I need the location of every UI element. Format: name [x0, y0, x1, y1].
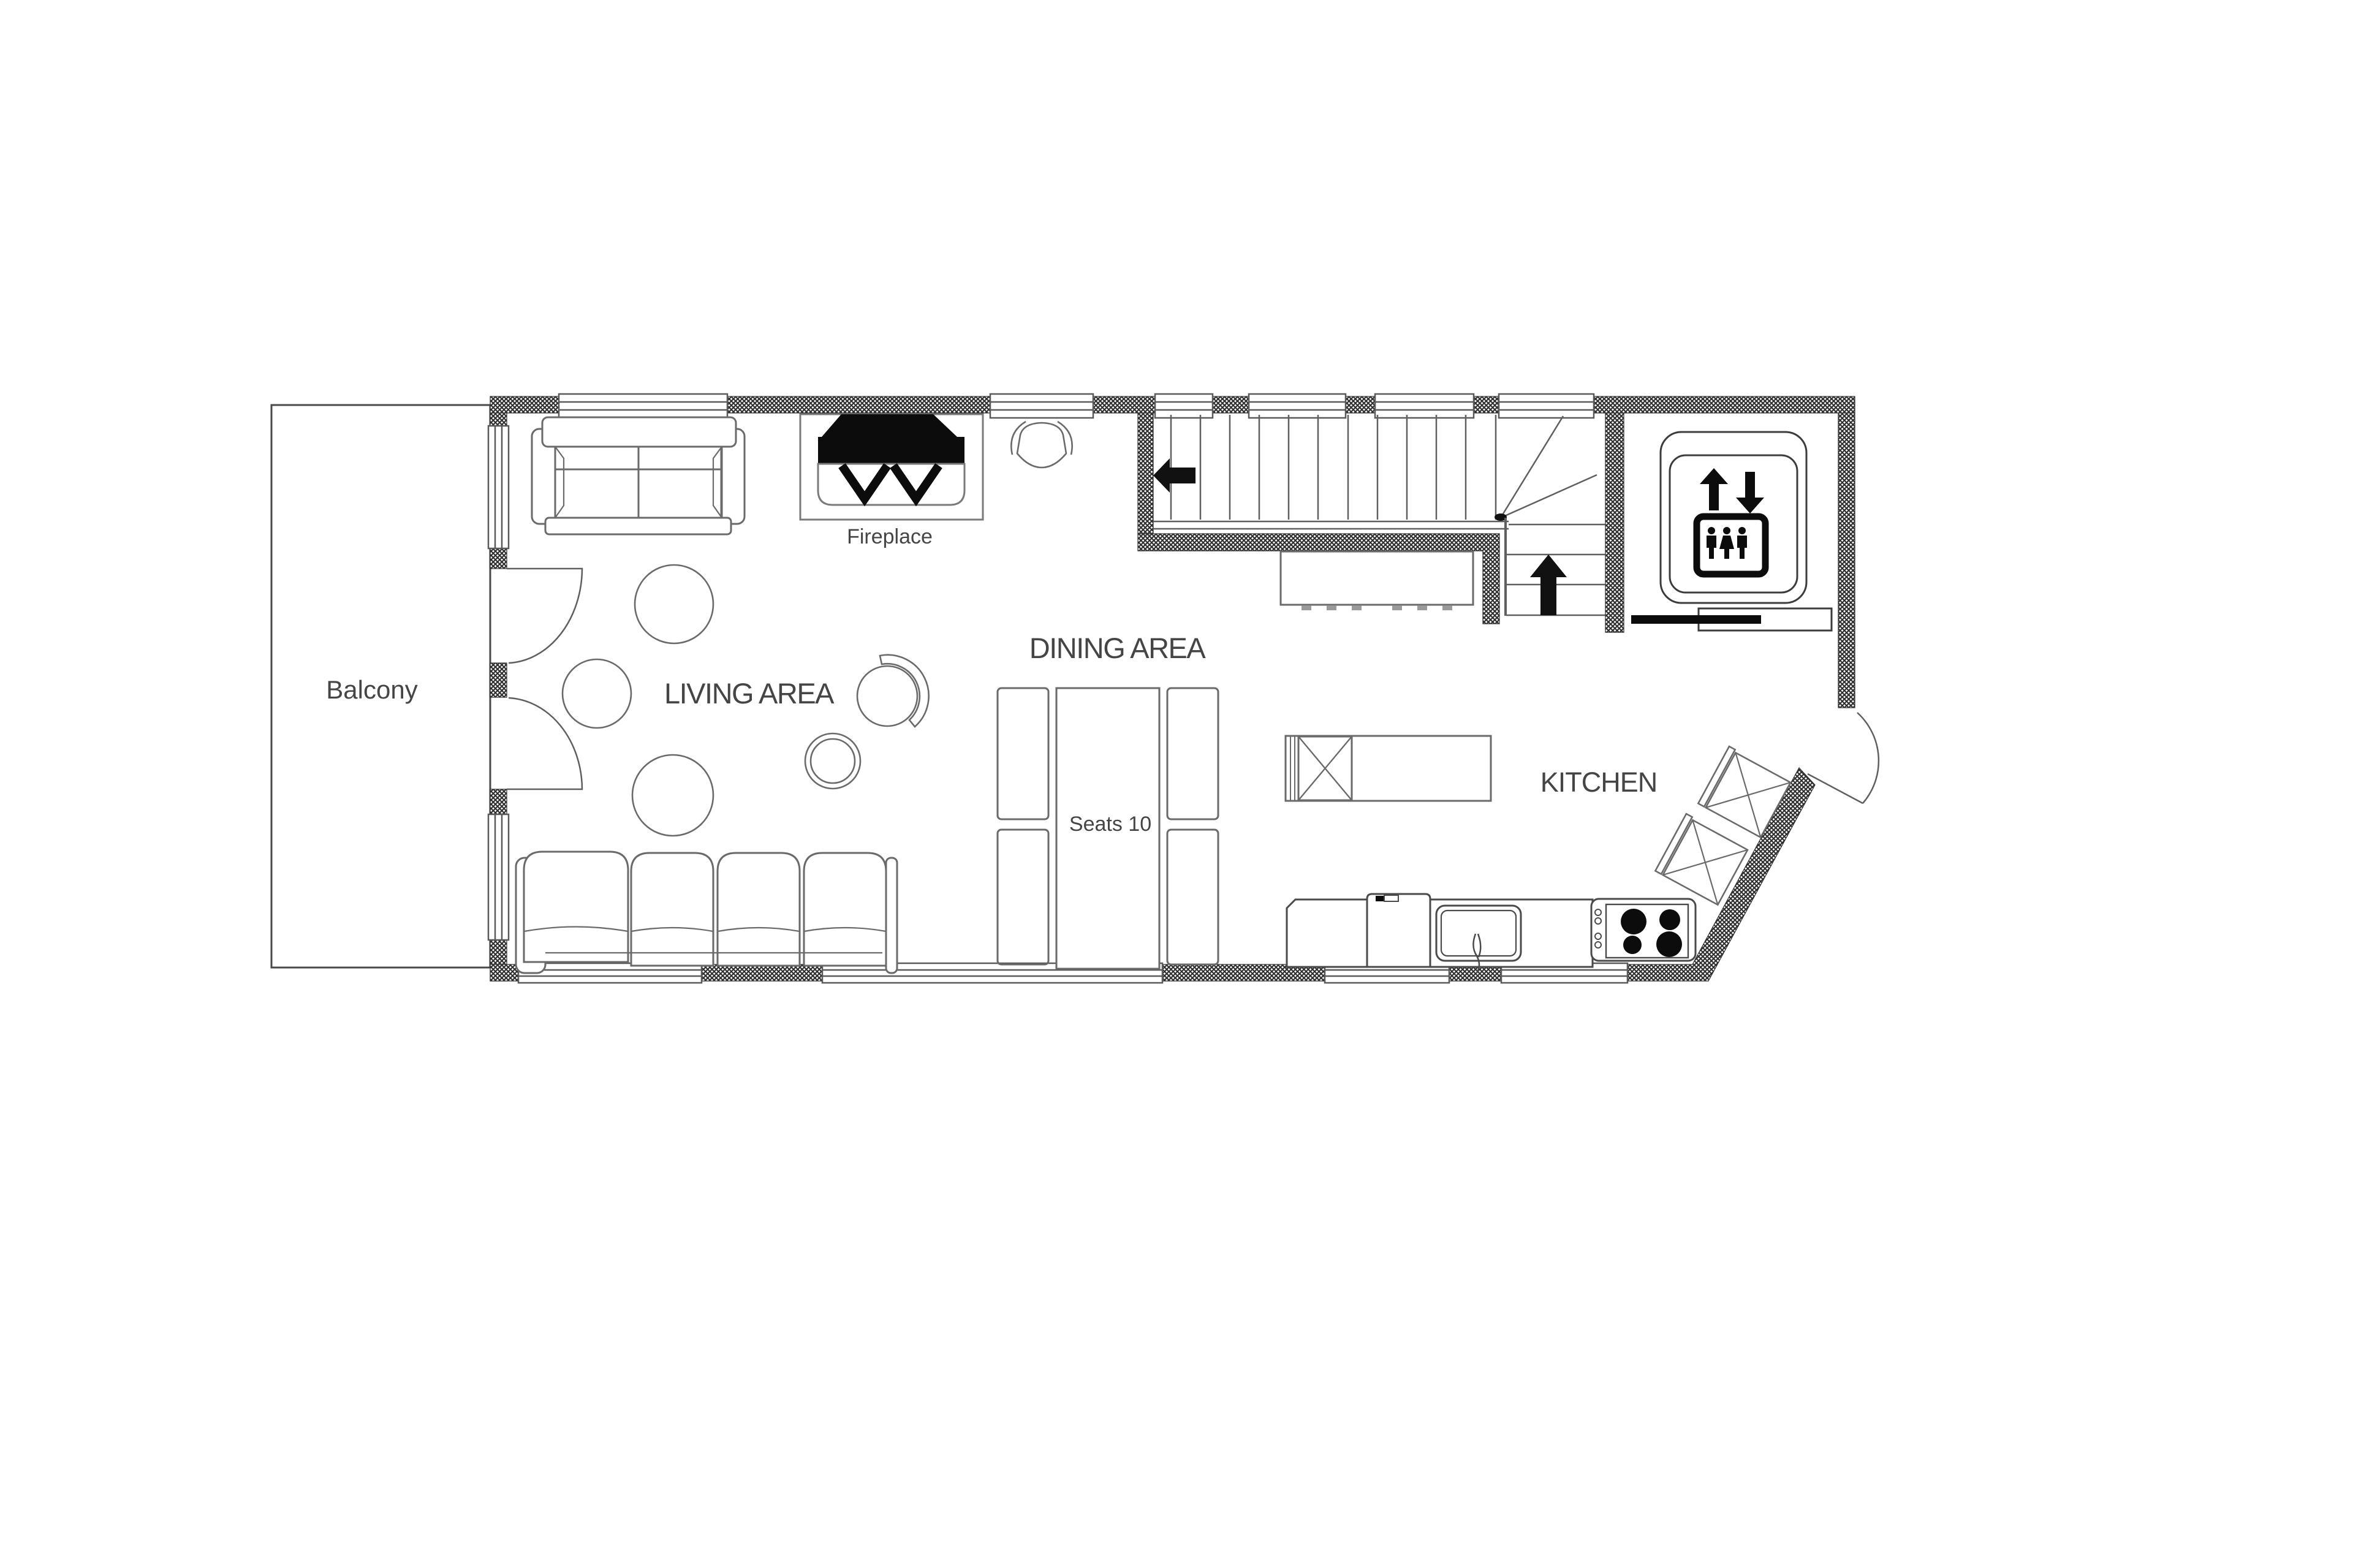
svg-text:Seats 10: Seats 10: [1069, 812, 1151, 836]
svg-text:DINING AREA: DINING AREA: [1029, 632, 1207, 664]
svg-text:KITCHEN: KITCHEN: [1540, 767, 1658, 798]
svg-text:Balcony: Balcony: [326, 675, 417, 704]
svg-text:LIVING AREA: LIVING AREA: [664, 677, 835, 710]
svg-text:Fireplace: Fireplace: [847, 525, 933, 548]
